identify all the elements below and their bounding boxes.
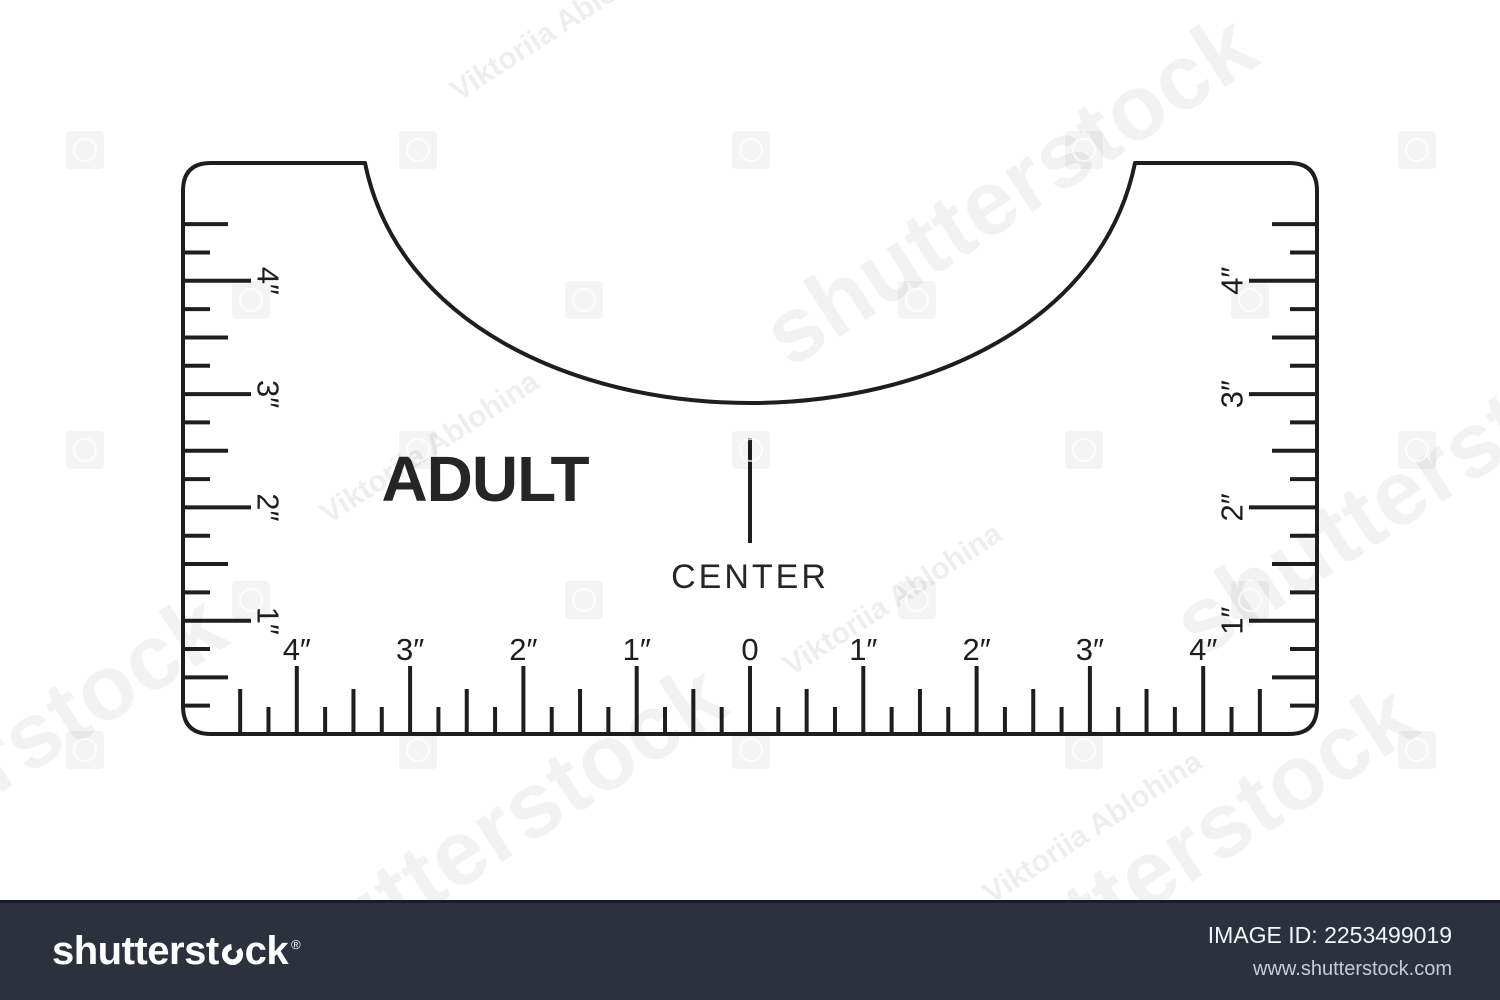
image-id-label: IMAGE ID:: [1208, 922, 1318, 948]
image-meta: IMAGE ID: 2253499019 www.shutterstock.co…: [1208, 922, 1500, 981]
image-id-value: 2253499019: [1324, 922, 1452, 948]
bottom-scale-label: 4″: [1189, 632, 1217, 667]
bottom-scale-label: 1″: [623, 632, 651, 667]
shutter-icon: [221, 943, 244, 966]
bottom-scale-label: 4″: [283, 632, 311, 667]
left-scale-label: 4″: [251, 267, 286, 295]
right-scale-label: 1″: [1215, 607, 1250, 635]
bottom-scale-label: 3″: [1076, 632, 1104, 667]
image-id-line: IMAGE ID: 2253499019: [1208, 922, 1452, 949]
right-scale-label: 3″: [1215, 380, 1250, 408]
bottom-scale-label: 2″: [509, 632, 537, 667]
registered-mark: ®: [291, 937, 300, 952]
bottom-scale-label: 1″: [849, 632, 877, 667]
ruler-artboard: 1″1″2″2″3″3″4″4″4″3″2″1″01″2″3″4″ ADULT …: [0, 0, 1500, 900]
logo-text-right: ck: [245, 929, 289, 974]
stock-image-preview: 1″1″2″2″3″3″4″4″4″3″2″1″01″2″3″4″ ADULT …: [0, 0, 1500, 1000]
bottom-scale-label: 3″: [396, 632, 424, 667]
left-scale-label: 2″: [250, 493, 285, 521]
website-url: www.shutterstock.com: [1253, 958, 1452, 981]
bottom-scale-label: 0: [741, 632, 758, 667]
tshirt-ruler-drawing: 1″1″2″2″3″3″4″4″4″3″2″1″01″2″3″4″ ADULT …: [0, 0, 1500, 900]
logo-text-left: shutterst: [52, 929, 219, 974]
center-label: CENTER: [671, 558, 829, 596]
shutterstock-logo: shutterst ck ®: [0, 929, 300, 974]
size-label: ADULT: [381, 443, 589, 515]
bottom-scale-label: 2″: [962, 632, 990, 667]
left-scale-label: 3″: [251, 380, 286, 408]
left-scale-label: 1″: [251, 607, 286, 635]
right-scale-label: 4″: [1215, 267, 1250, 295]
shutterstock-footer-bar: shutterst ck ® IMAGE ID: 2253499019 www.…: [0, 900, 1500, 1000]
right-scale-label: 2″: [1215, 493, 1250, 521]
